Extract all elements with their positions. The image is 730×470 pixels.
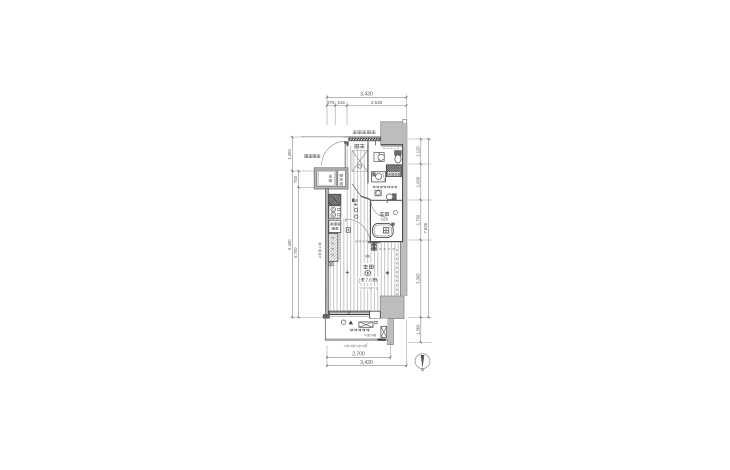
svg-text:7.0: 7.0 xyxy=(366,278,373,283)
svg-text:7,835: 7,835 xyxy=(423,222,428,233)
svg-text:1116: 1116 xyxy=(380,218,387,222)
svg-text:5,700: 5,700 xyxy=(293,247,298,258)
svg-text:1,600: 1,600 xyxy=(415,176,420,187)
svg-text:1,120: 1,120 xyxy=(415,146,420,157)
svg-text:2,700: 2,700 xyxy=(352,352,365,358)
svg-text:3,430: 3,430 xyxy=(360,92,373,98)
svg-text:3,365: 3,365 xyxy=(415,273,420,284)
svg-text:1,450: 1,450 xyxy=(287,148,292,159)
svg-text:515: 515 xyxy=(338,100,346,105)
svg-text:3,430: 3,430 xyxy=(360,360,373,366)
svg-text:1,750: 1,750 xyxy=(415,214,420,225)
svg-text:1,360: 1,360 xyxy=(415,324,420,335)
svg-text:375: 375 xyxy=(327,100,335,105)
svg-text:2,540: 2,540 xyxy=(371,100,383,105)
svg-text:6,400: 6,400 xyxy=(287,239,292,250)
svg-text:700: 700 xyxy=(293,175,298,183)
